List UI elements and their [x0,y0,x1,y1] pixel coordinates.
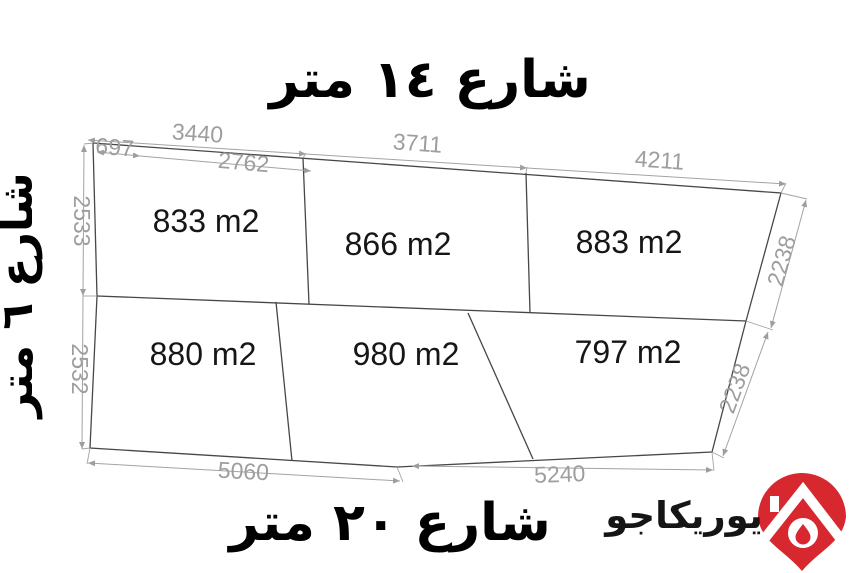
plot-outline [90,143,781,467]
land-survey-image: شارع ١٤ متر شارع ٦ متر شارع ٢٠ متر [0,0,855,573]
parcel-area-labels: 833 m2 866 m2 883 m2 880 m2 980 m2 797 m… [150,203,683,372]
brand-wordmark: يوريكاجو [603,494,763,537]
parcel-area-980: 980 m2 [353,336,460,372]
dim-label-697: 697 [94,132,134,161]
dim-label-4211: 4211 [634,145,685,174]
dimension-lines [82,140,807,482]
parcel-area-833: 833 m2 [153,203,260,239]
dim-label-5060: 5060 [217,457,269,486]
brand-watermark: يوريكاجو [603,473,846,571]
street-label-top: شارع ١٤ متر [266,50,591,110]
dim-label-2532: 2532 [67,343,93,394]
dim-label-3711: 3711 [392,128,443,157]
dimension-labels: 3440 697 2762 3711 4211 2533 2532 2238 2… [67,118,801,488]
street-label-bottom: شارع ٢٠ متر [226,493,551,553]
dim-label-3440: 3440 [171,118,224,148]
parcel-area-880: 880 m2 [150,336,257,372]
dim-label-2533: 2533 [69,195,95,246]
parcel-area-883: 883 m2 [576,224,683,260]
dim-label-5240: 5240 [534,460,586,488]
parcel-area-797: 797 m2 [575,334,682,370]
dim-label-2762: 2762 [217,147,270,177]
street-label-left: شارع ٦ متر [0,172,43,419]
parcel-area-866: 866 m2 [345,226,452,262]
dim-label-2238-lower: 2238 [714,360,756,417]
map-pin-house-icon [758,473,846,571]
